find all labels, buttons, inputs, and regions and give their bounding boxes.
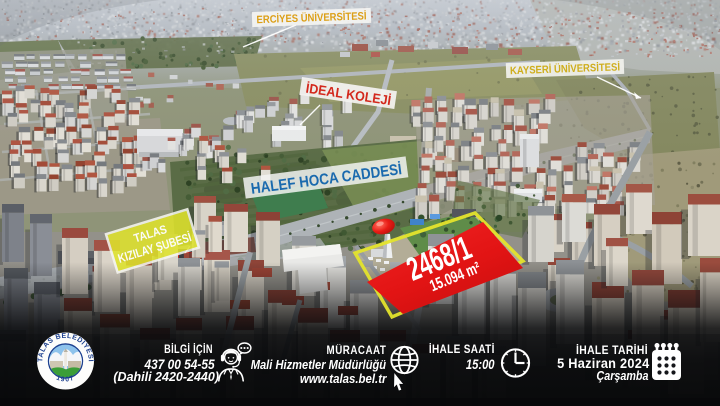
svg-text:HALEF HOCA CADDESİ: HALEF HOCA CADDESİ <box>250 161 403 198</box>
